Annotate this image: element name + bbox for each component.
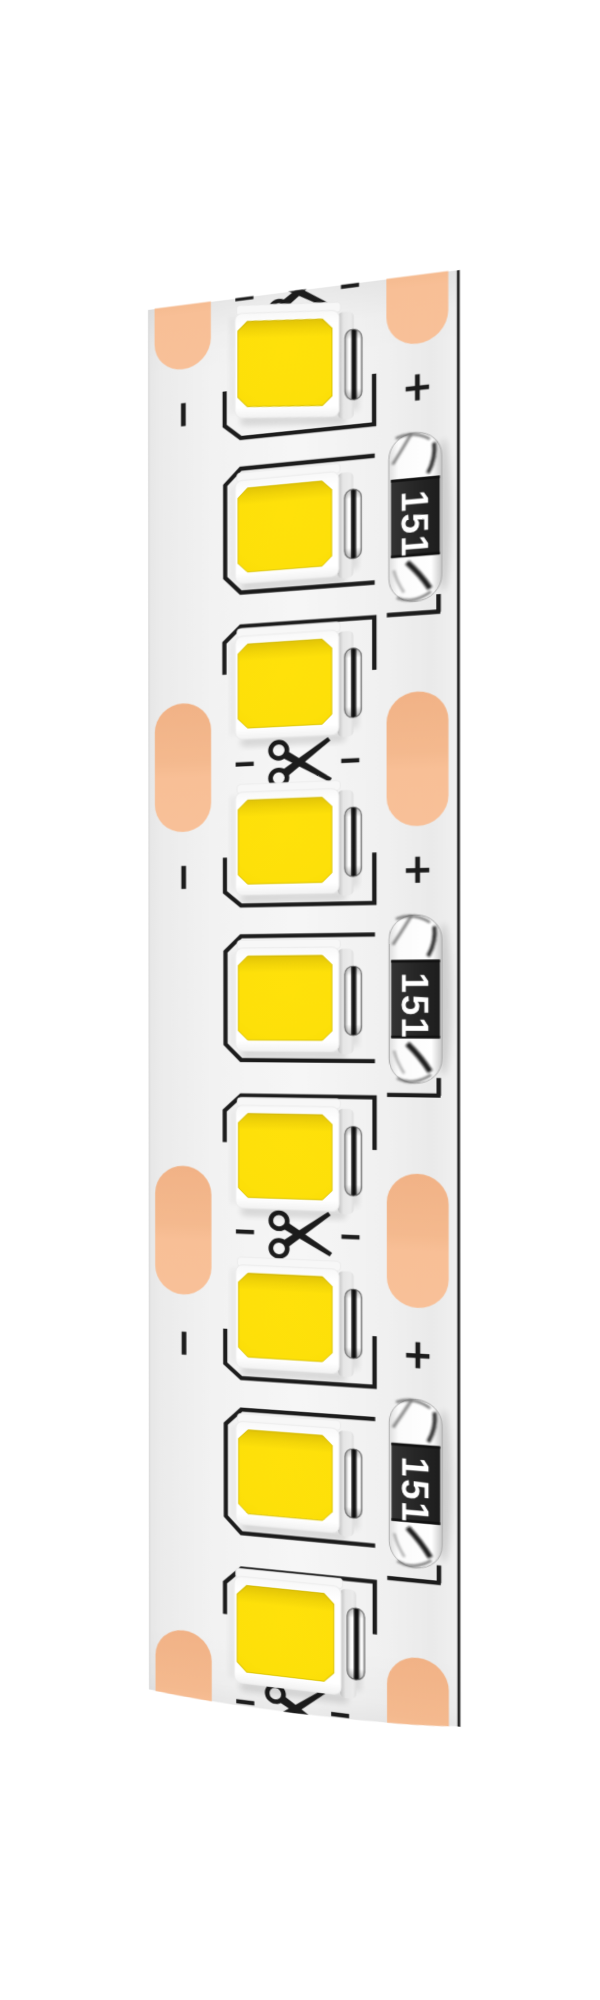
- svg-text:151: 151: [393, 972, 436, 1039]
- svg-text:151: 151: [393, 1455, 436, 1526]
- svg-text:151: 151: [393, 488, 436, 559]
